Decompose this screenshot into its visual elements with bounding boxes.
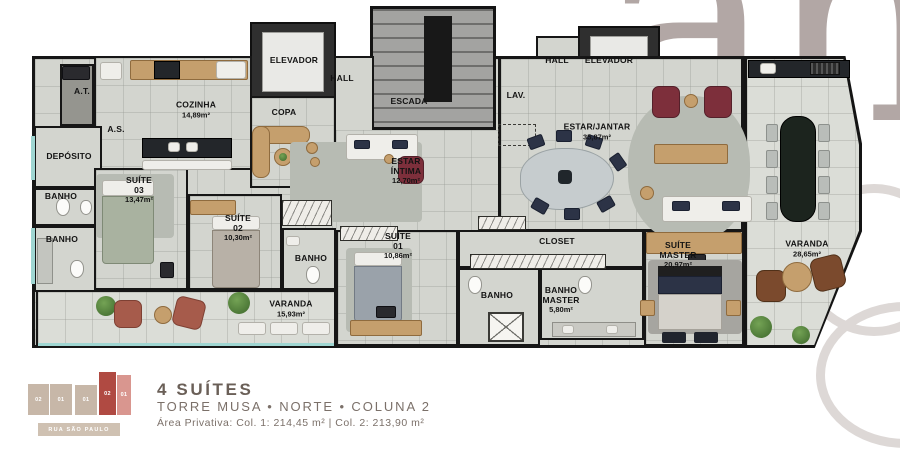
sofa-cushion xyxy=(354,140,370,149)
plant-icon xyxy=(228,292,250,314)
side-table xyxy=(684,94,698,108)
armchair xyxy=(704,86,732,118)
toilet-icon xyxy=(578,276,592,294)
plant-icon xyxy=(792,326,810,344)
plant-icon xyxy=(750,316,772,338)
sink-icon xyxy=(168,142,180,152)
sitemap-unit-label: 02 xyxy=(104,391,111,397)
sitemap-unit-label: 01 xyxy=(83,397,90,403)
dining-chair xyxy=(818,124,830,142)
wardrobe xyxy=(478,216,526,230)
desk xyxy=(190,200,236,215)
sitemap-minimap: 02 01 01 02 01 RUA SÃO PAULO xyxy=(28,370,132,446)
nightstand xyxy=(726,300,741,316)
dining-chair xyxy=(766,124,778,142)
floorplan-page: { "watermark": { "text": "ah" }, "rooms"… xyxy=(0,0,900,462)
fridge xyxy=(216,61,246,79)
room-deposito xyxy=(34,126,102,188)
sink-icon xyxy=(186,142,198,152)
sofa-cushion xyxy=(672,201,690,211)
granite-dining-table xyxy=(780,116,816,222)
plant-icon xyxy=(279,153,287,161)
stove-icon xyxy=(154,61,180,79)
round-table xyxy=(154,306,172,324)
nightstand xyxy=(640,300,655,316)
sofa-cushion xyxy=(722,201,740,211)
street-label-text: RUA SÃO PAULO xyxy=(48,427,109,433)
stairs-core xyxy=(424,16,452,102)
sitemap-unit-highlighted: 02 xyxy=(99,372,116,415)
bench-cushion xyxy=(238,322,266,335)
sitemap-unit: 01 xyxy=(75,385,97,415)
bench-cushion xyxy=(694,332,718,343)
dining-chair xyxy=(556,130,572,142)
sink-icon xyxy=(760,63,776,74)
bidet-icon xyxy=(80,200,92,215)
copa-bench xyxy=(252,126,270,178)
street-label: RUA SÃO PAULO xyxy=(38,423,120,436)
pouf xyxy=(306,142,318,154)
kitchen-cabinet xyxy=(142,160,232,170)
wardrobe xyxy=(470,254,606,269)
at-equipment xyxy=(62,66,90,80)
footer: 02 01 01 02 01 RUA SÃO PAULO 4 SUÍTES TO… xyxy=(0,366,900,462)
toilet-icon xyxy=(468,276,482,294)
window xyxy=(31,136,35,180)
bed-pillows xyxy=(102,180,154,196)
desk xyxy=(350,320,422,336)
pouf xyxy=(310,157,320,167)
dining-chair xyxy=(818,176,830,194)
headboard xyxy=(658,266,722,276)
toilet-icon xyxy=(306,266,320,284)
round-table xyxy=(782,262,812,292)
bed-pillows xyxy=(212,216,260,230)
side-table xyxy=(640,186,654,200)
sitemap-unit-label: 02 xyxy=(35,397,42,403)
sitemap-unit-label: 01 xyxy=(121,392,128,398)
dining-chair xyxy=(564,208,580,220)
toilet-icon xyxy=(70,260,84,278)
dining-chair xyxy=(766,150,778,168)
dining-chair xyxy=(818,150,830,168)
window xyxy=(31,228,35,284)
sink-icon xyxy=(606,325,618,334)
wardrobe xyxy=(340,226,398,241)
side-table xyxy=(384,154,394,164)
plan-title: 4 SUÍTES xyxy=(157,380,253,400)
desk xyxy=(646,232,742,254)
plan-subtitle: TORRE MUSA • NORTE • COLUNA 2 xyxy=(157,399,431,414)
wardrobe xyxy=(282,200,332,226)
monitor-icon xyxy=(376,306,396,318)
shower xyxy=(37,238,53,284)
table-centerpiece xyxy=(558,170,572,184)
grill-icon xyxy=(810,62,840,75)
plant-icon xyxy=(96,296,116,316)
bench-cushion xyxy=(270,322,298,335)
shaft-x xyxy=(488,312,524,342)
bench-cushion xyxy=(662,332,686,343)
dining-chair xyxy=(766,202,778,220)
console-table xyxy=(654,144,728,164)
dining-chair xyxy=(818,202,830,220)
sitemap-unit: 01 xyxy=(50,384,72,415)
room-hall-left xyxy=(334,56,374,132)
sink-icon xyxy=(286,236,300,246)
washer-icon xyxy=(100,62,122,80)
bench-cushion xyxy=(302,322,330,335)
chair xyxy=(160,262,174,278)
elevator-left-cab xyxy=(262,32,324,92)
bed-pillows xyxy=(354,252,402,266)
toilet-icon xyxy=(56,198,70,216)
plan-private-area: Área Privativa: Col. 1: 214,45 m² | Col.… xyxy=(157,417,424,429)
bed-pillows xyxy=(658,276,722,294)
bed xyxy=(212,230,260,288)
sofa-cushion xyxy=(392,140,408,149)
dining-chair xyxy=(766,176,778,194)
outdoor-chair xyxy=(114,300,142,328)
sitemap-unit: 02 xyxy=(28,384,49,415)
sitemap-unit-label: 01 xyxy=(58,397,65,403)
sink-icon xyxy=(562,325,574,334)
varanda-glass xyxy=(38,343,334,346)
armchair xyxy=(398,156,424,184)
bed xyxy=(102,196,154,264)
armchair xyxy=(652,86,680,118)
bed xyxy=(658,294,722,330)
sitemap-unit: 01 xyxy=(117,375,131,415)
